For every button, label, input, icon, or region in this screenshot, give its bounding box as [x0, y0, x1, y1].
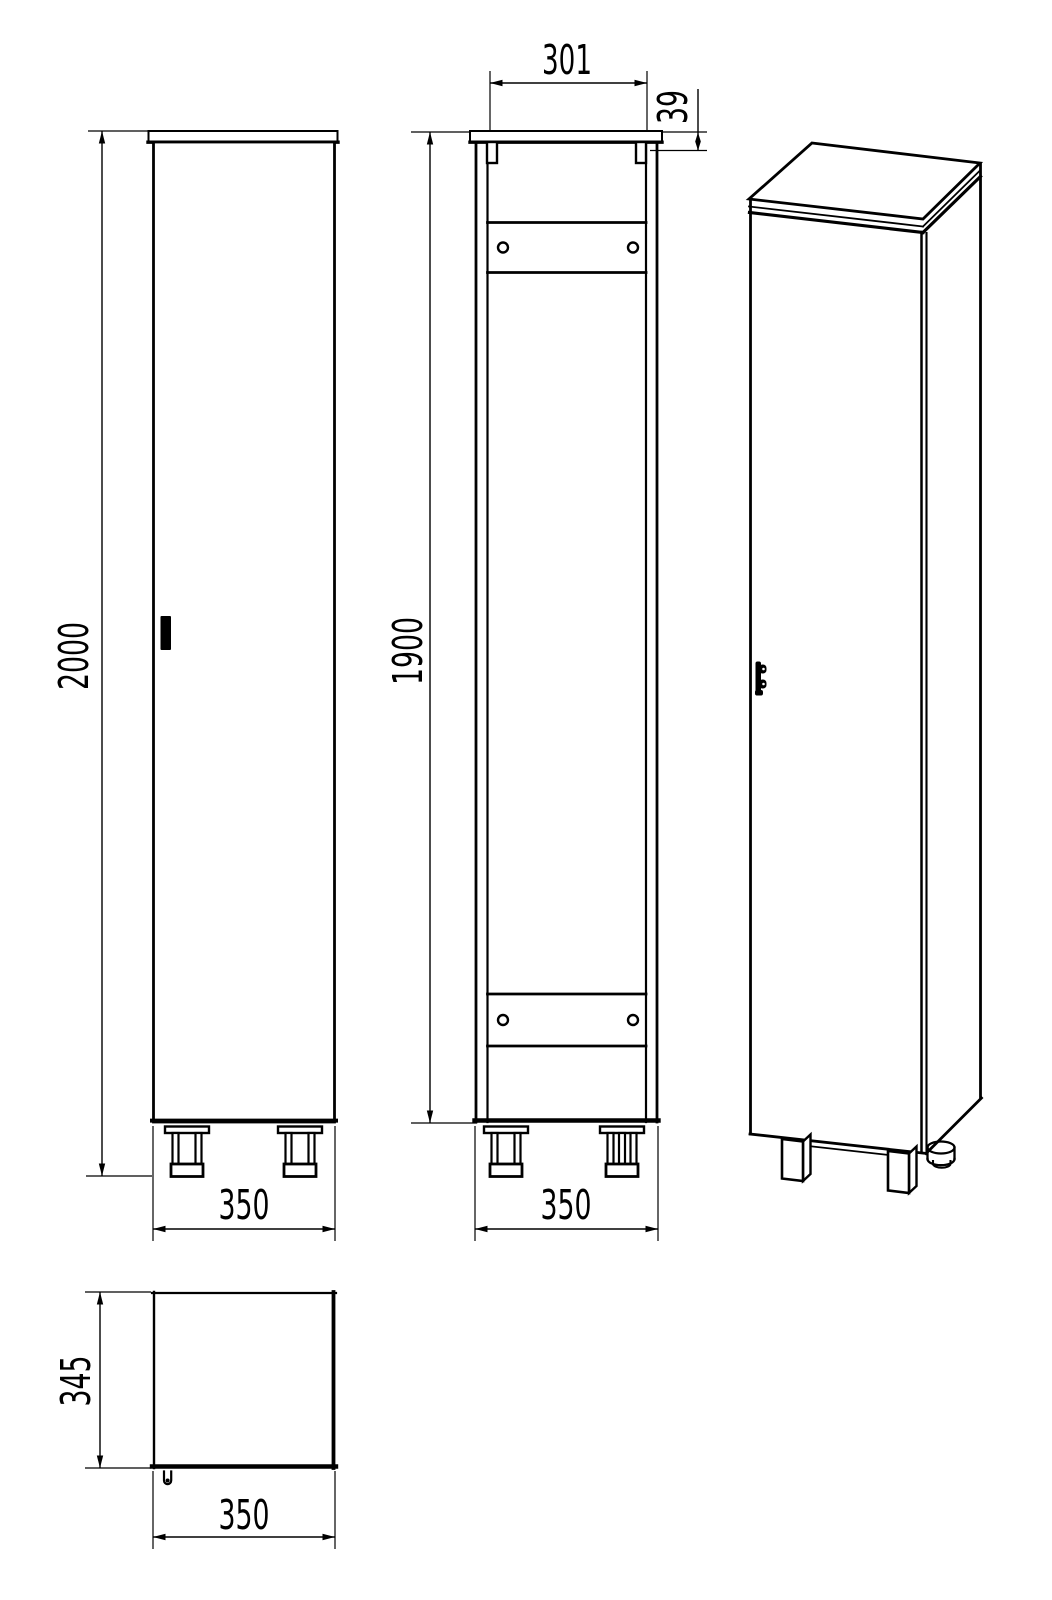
dim-back-hanger-offset: 39	[649, 90, 697, 124]
arrowhead	[646, 1226, 659, 1232]
arrowhead	[99, 131, 105, 144]
iso-door-handle	[755, 662, 767, 696]
cabinet-technical-drawing: 2000 350	[0, 0, 1052, 1600]
front-top-panel	[149, 131, 338, 142]
back-foot-left	[484, 1127, 528, 1177]
front-foot-right	[278, 1127, 322, 1177]
back-top-panel	[470, 131, 662, 142]
dim-front-width: 350	[219, 1181, 270, 1229]
arrowhead	[635, 80, 648, 86]
top-view-handle	[164, 1472, 171, 1485]
front-door	[154, 142, 335, 1122]
back-rail-lower	[488, 994, 647, 1046]
iso-door-bottom-edge	[750, 1134, 927, 1154]
front-foot-left	[165, 1127, 209, 1177]
iso-round-foot	[928, 1142, 955, 1168]
arrowhead	[97, 1292, 103, 1305]
iso-foot-left	[782, 1135, 811, 1182]
dim-back-inner-width: 301	[542, 36, 592, 84]
screw-hole	[498, 1015, 508, 1025]
back-rail-upper	[488, 223, 647, 273]
screw-hole	[628, 1015, 638, 1025]
dim-top-depth: 345	[52, 1356, 100, 1407]
arrowhead	[427, 132, 433, 145]
screw-hole	[628, 243, 638, 253]
hanger-bracket-left	[487, 142, 497, 163]
iso-foot-right	[888, 1147, 917, 1194]
dim-top-width: 350	[219, 1491, 270, 1539]
back-view	[470, 131, 662, 1177]
dim-back-carcass-height: 1900	[384, 617, 432, 685]
hanger-bracket-right	[636, 142, 646, 163]
isometric-view	[749, 143, 982, 1193]
arrowhead	[99, 1164, 105, 1177]
arrowhead	[427, 1111, 433, 1124]
arrowhead	[97, 1456, 103, 1469]
arrowhead	[323, 1534, 336, 1540]
arrowhead	[153, 1534, 166, 1540]
arrowhead	[475, 1226, 488, 1232]
dim-front-height: 2000	[50, 622, 98, 690]
top-view-dimensions: 345 350	[52, 1292, 335, 1549]
arrowhead	[695, 142, 701, 151]
screw-hole	[498, 243, 508, 253]
front-view	[148, 131, 338, 1177]
dim-back-width: 350	[541, 1181, 592, 1229]
arrowhead	[695, 133, 701, 142]
back-view-dimensions: 301 39 1900 350	[384, 36, 707, 1241]
arrowhead	[323, 1226, 336, 1232]
back-foot-right	[600, 1127, 644, 1177]
door-handle	[161, 616, 172, 650]
arrowhead	[153, 1226, 166, 1232]
iso-top-face	[749, 143, 980, 219]
drawing-sheet: 2000 350	[0, 0, 1052, 1600]
arrowhead	[490, 80, 503, 86]
top-view	[152, 1292, 336, 1484]
